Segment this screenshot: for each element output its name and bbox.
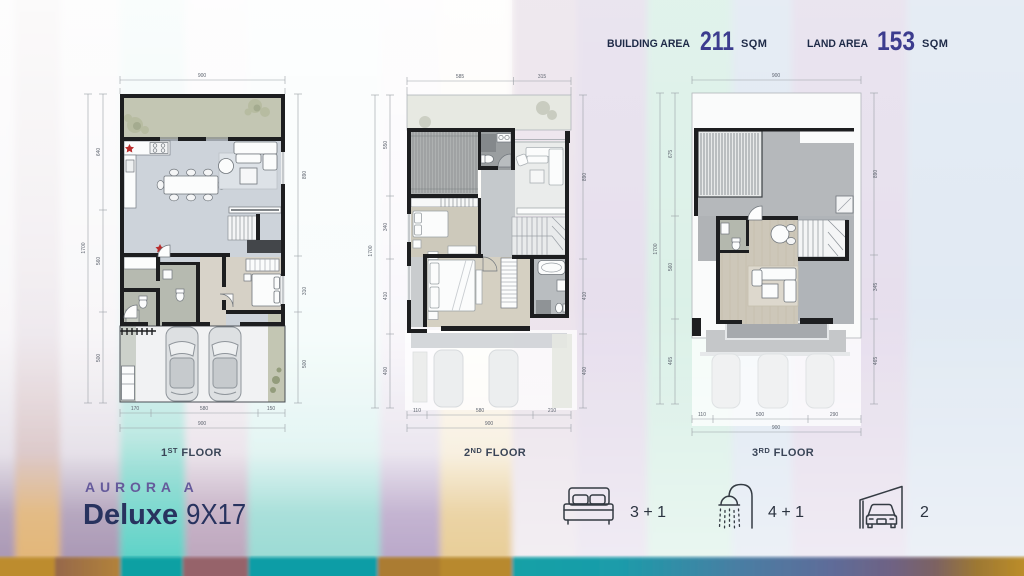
svg-text:465: 465	[873, 357, 879, 366]
svg-text:900: 900	[198, 73, 207, 79]
svg-text:580: 580	[200, 406, 209, 412]
svg-text:2: 2	[920, 504, 929, 521]
svg-text:SQM: SQM	[741, 38, 767, 50]
svg-text:BUILDING AREA: BUILDING AREA	[607, 38, 690, 50]
svg-text:675: 675	[668, 150, 674, 159]
svg-text:900: 900	[772, 73, 781, 79]
svg-text:3 + 1: 3 + 1	[630, 504, 666, 521]
svg-text:500: 500	[96, 354, 102, 363]
svg-text:560: 560	[668, 263, 674, 272]
svg-text:400: 400	[383, 367, 389, 376]
svg-text:410: 410	[582, 292, 588, 301]
svg-text:1700: 1700	[81, 242, 87, 253]
svg-text:890: 890	[873, 170, 879, 179]
svg-text:900: 900	[198, 421, 207, 427]
svg-text:150: 150	[267, 406, 276, 412]
svg-text:465: 465	[668, 357, 674, 366]
svg-text:900: 900	[772, 425, 781, 431]
svg-text:AURORA A: AURORA A	[85, 479, 199, 495]
svg-text:410: 410	[383, 292, 389, 301]
svg-text:560: 560	[96, 257, 102, 266]
svg-text:4 + 1: 4 + 1	[768, 504, 804, 521]
svg-text:500: 500	[756, 412, 765, 418]
svg-text:550: 550	[383, 141, 389, 150]
svg-text:290: 290	[830, 412, 839, 418]
svg-text:580: 580	[476, 408, 485, 414]
svg-text:1700: 1700	[368, 245, 374, 256]
svg-text:SQM: SQM	[922, 38, 948, 50]
svg-text:210: 210	[548, 408, 557, 414]
svg-text:340: 340	[383, 223, 389, 232]
svg-text:900: 900	[485, 421, 494, 427]
svg-text:345: 345	[873, 283, 879, 292]
svg-text:153: 153	[877, 26, 915, 56]
svg-text:585: 585	[456, 74, 465, 80]
svg-text:110: 110	[698, 412, 706, 418]
svg-text:170: 170	[131, 406, 140, 412]
svg-text:LAND AREA: LAND AREA	[807, 38, 868, 50]
svg-text:640: 640	[96, 148, 102, 157]
svg-text:890: 890	[302, 171, 308, 180]
svg-text:310: 310	[302, 287, 308, 296]
svg-text:890: 890	[582, 173, 588, 182]
svg-text:500: 500	[302, 360, 308, 369]
svg-text:110: 110	[413, 408, 421, 414]
svg-text:315: 315	[538, 74, 547, 80]
svg-text:400: 400	[582, 367, 588, 376]
svg-text:1700: 1700	[653, 243, 659, 254]
svg-text:211: 211	[700, 26, 734, 56]
svg-text:Deluxe 9X17: Deluxe 9X17	[83, 499, 246, 531]
